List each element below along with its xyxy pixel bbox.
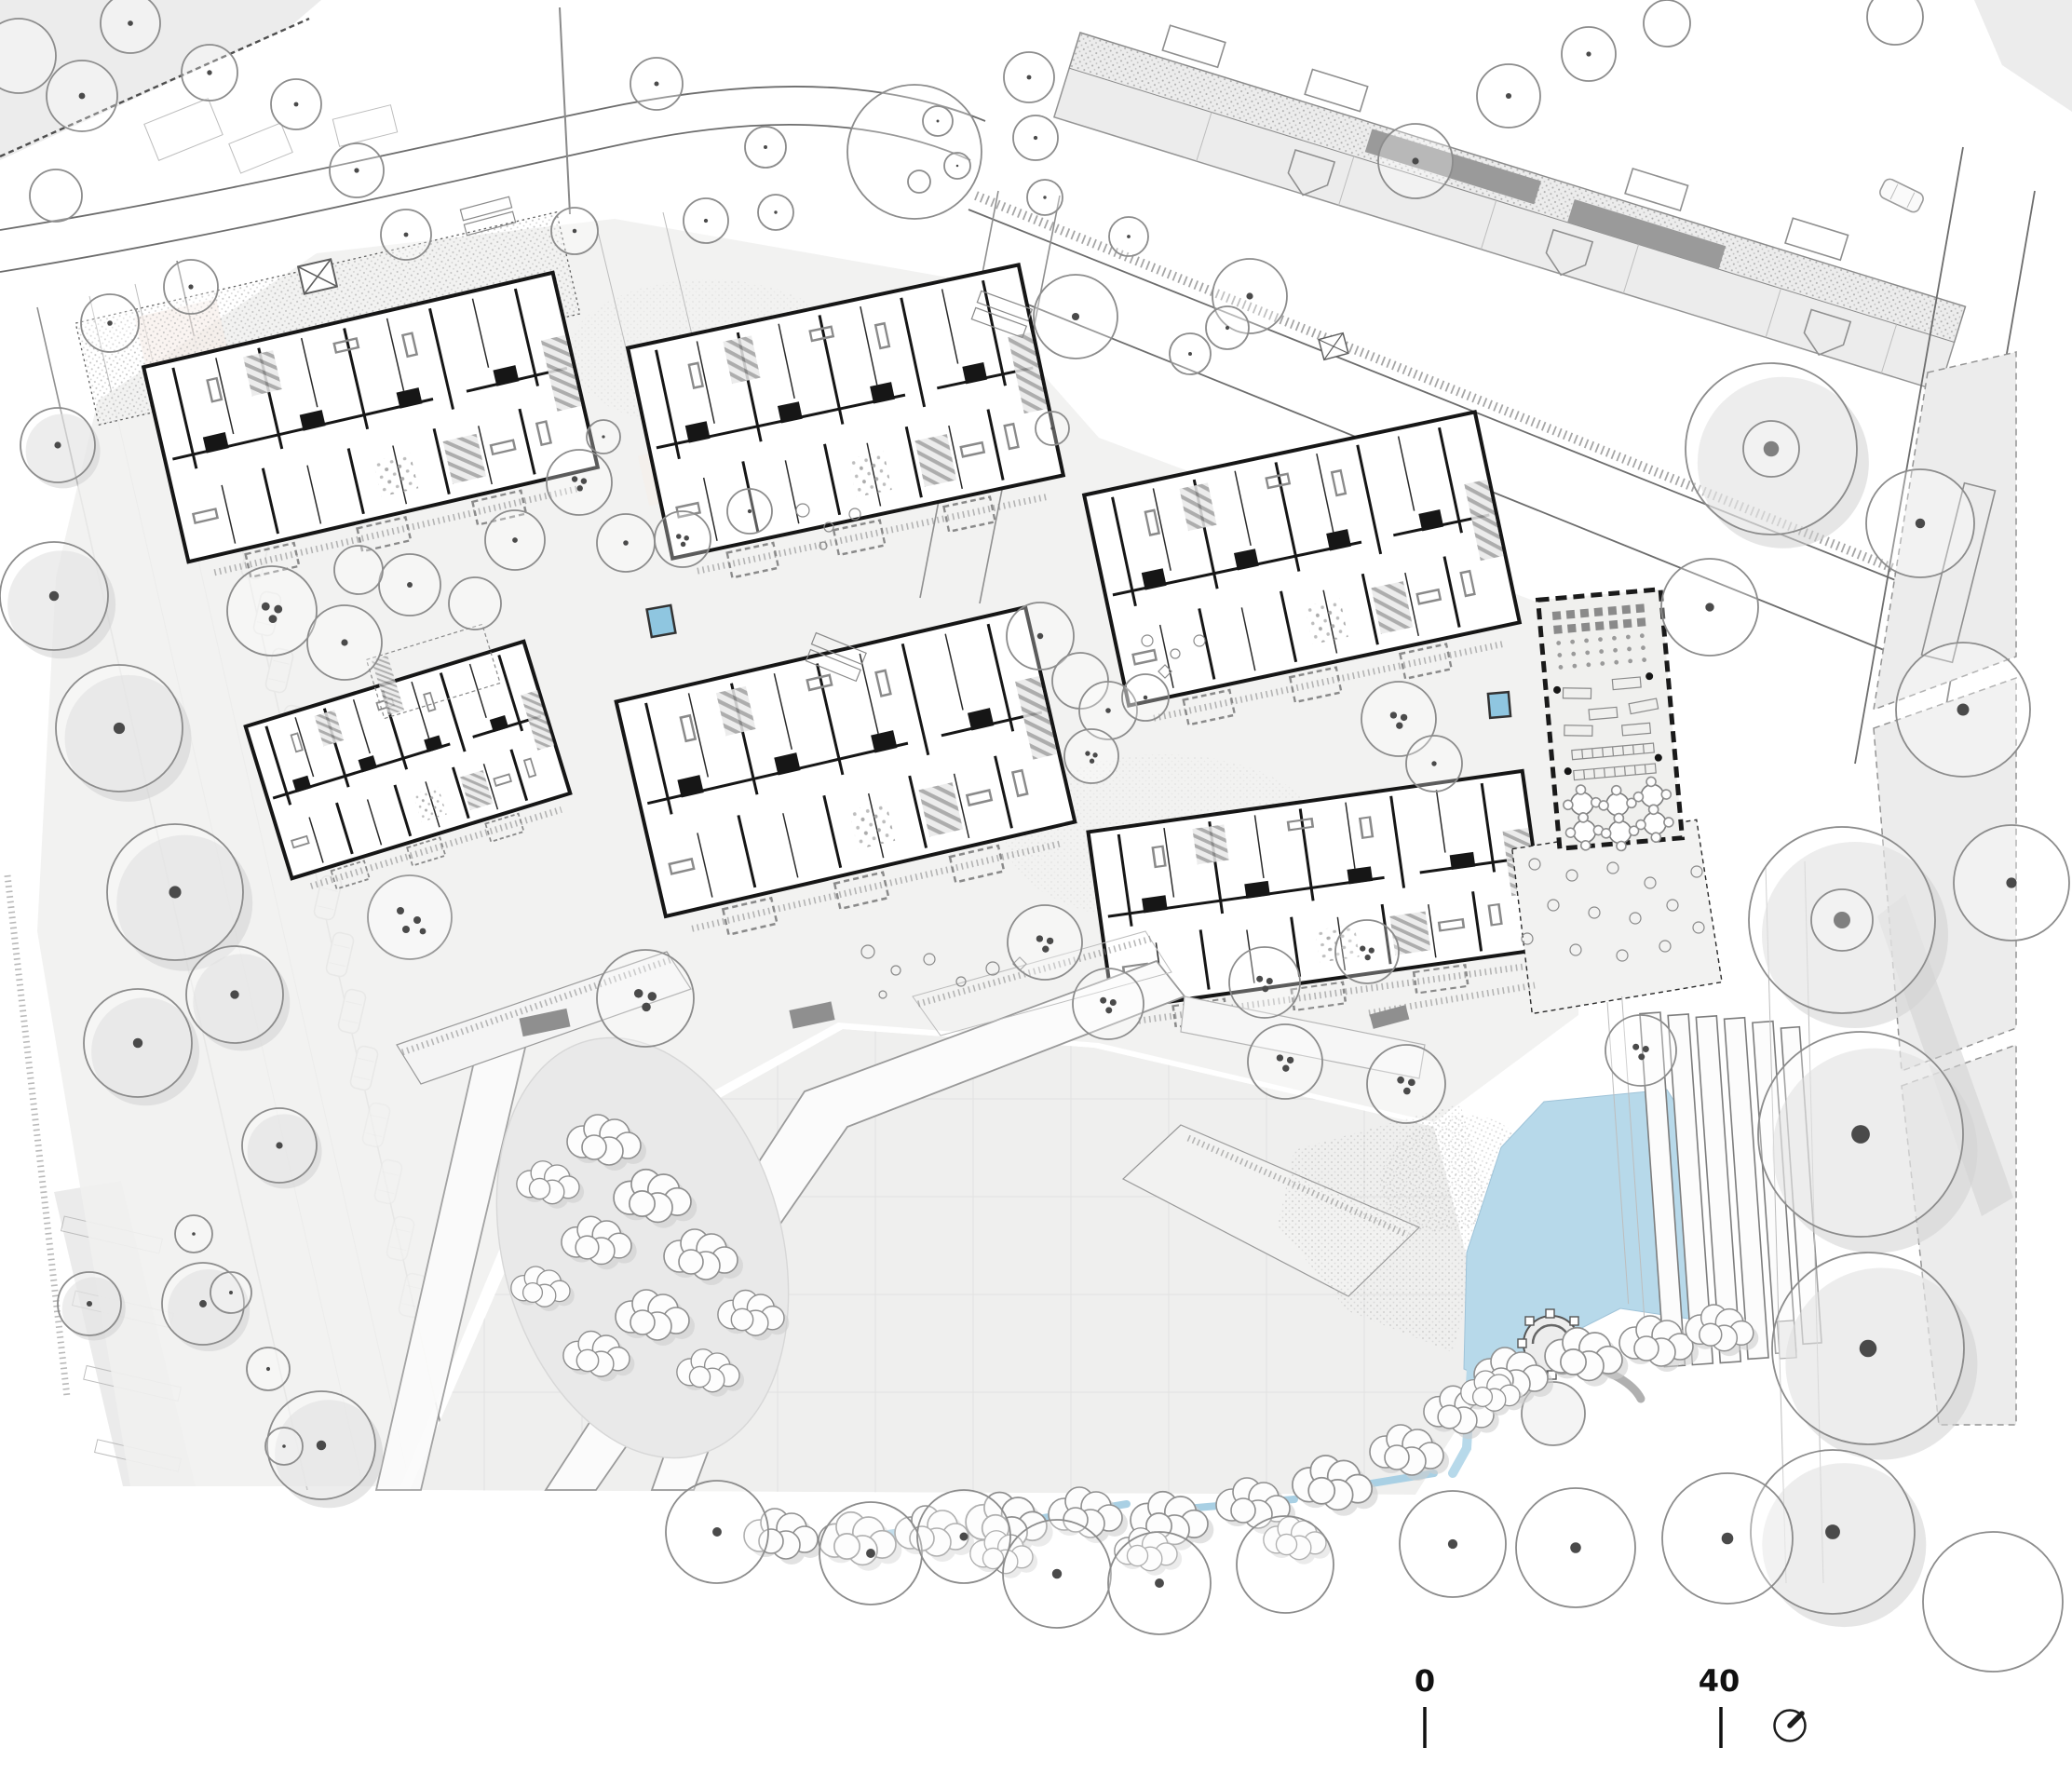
scale-start-label: 0 bbox=[1415, 1663, 1435, 1699]
site-plan-drawing: 0 40 bbox=[0, 0, 2072, 1788]
water-play-table bbox=[647, 605, 676, 637]
scale-end-label: 40 bbox=[1699, 1663, 1740, 1699]
water-play-table bbox=[1488, 692, 1510, 718]
site-plan-page: 0 40 bbox=[0, 0, 2072, 1788]
sandpit bbox=[368, 875, 452, 959]
